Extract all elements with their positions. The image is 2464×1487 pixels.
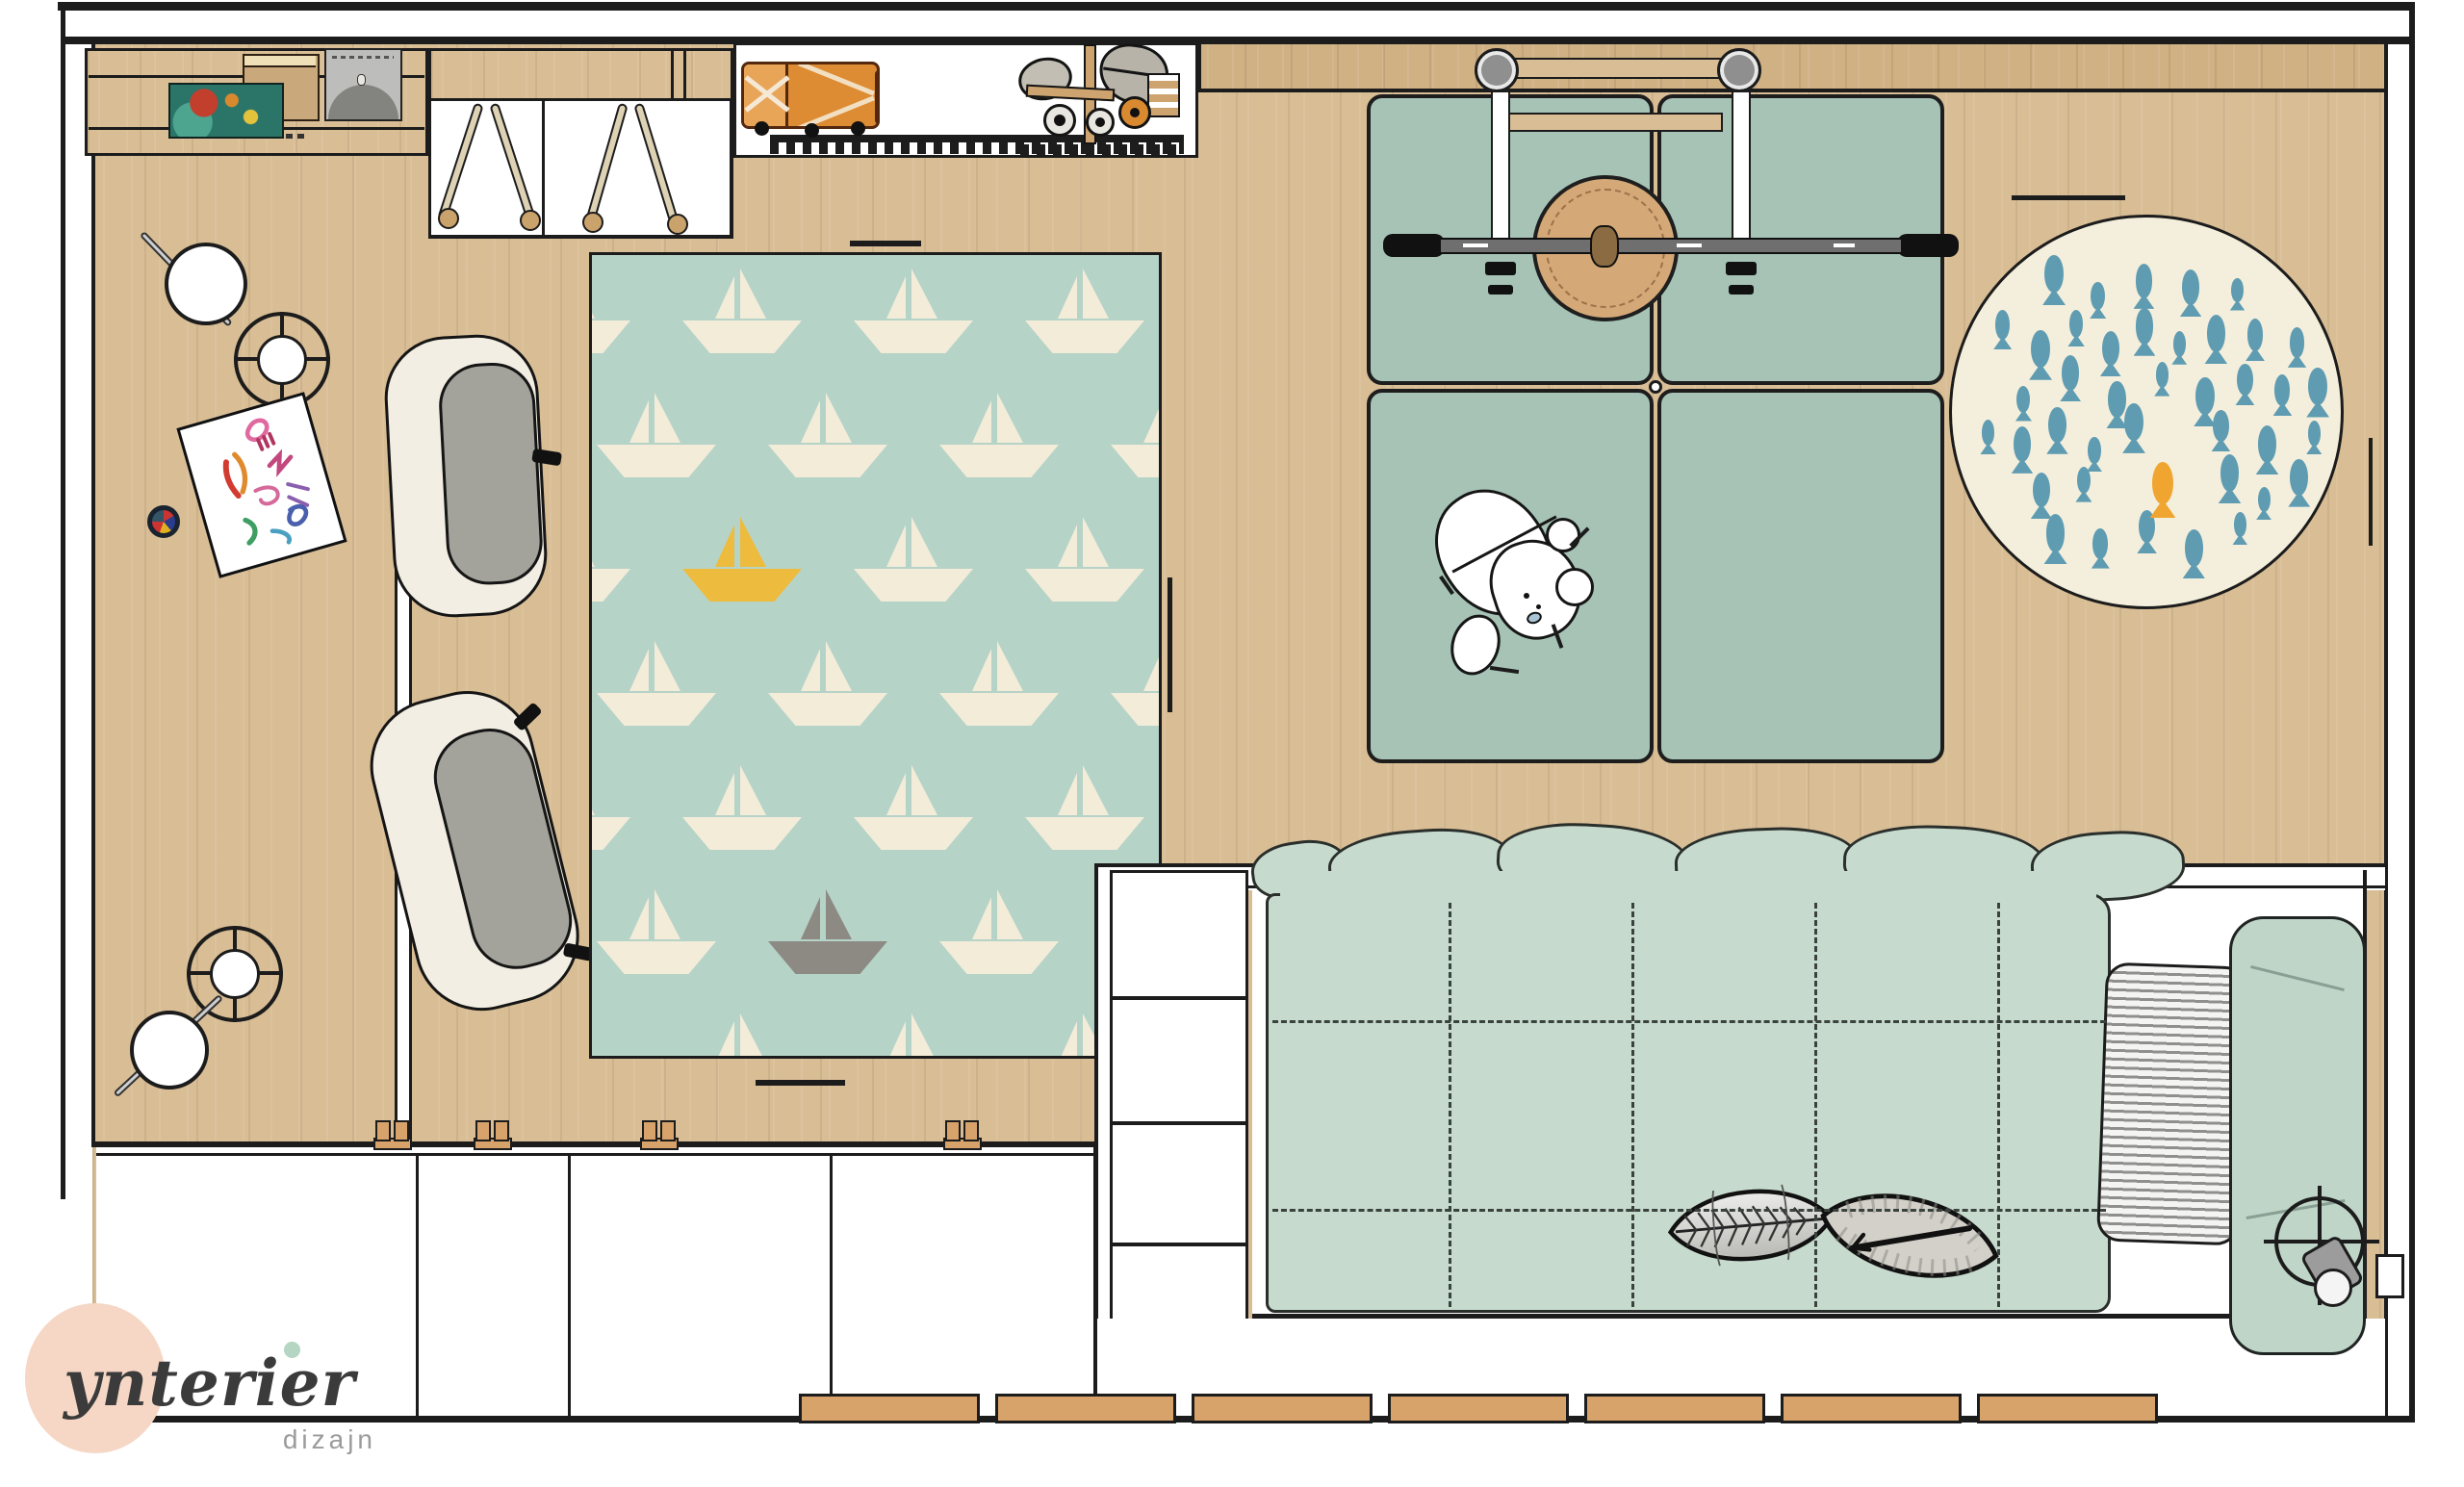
boat-part — [1058, 1021, 1077, 1059]
fish-motif — [2236, 364, 2253, 405]
nook-floor-line — [428, 235, 733, 239]
wall-right-inner — [2384, 44, 2388, 1416]
fish-part — [1982, 420, 1995, 446]
fish-motif — [2045, 514, 2066, 564]
fish-part — [2173, 331, 2186, 356]
boat-part — [589, 320, 630, 353]
fish-part — [2288, 354, 2306, 368]
boat-part — [682, 569, 802, 602]
desk-lamp-shade — [165, 243, 247, 325]
stool-foot — [438, 208, 459, 229]
fish-part — [2014, 426, 2031, 462]
boat-motif-yellow — [682, 517, 802, 602]
desk-top — [428, 48, 733, 101]
fish-motif — [2206, 315, 2227, 364]
boat-part — [740, 765, 766, 815]
boat-part — [886, 1021, 906, 1059]
boat-part — [597, 693, 716, 726]
nook-side — [428, 101, 431, 239]
crane-wheel-hub — [1054, 115, 1065, 126]
boat-part — [886, 773, 906, 815]
ring-lamp-inner — [257, 335, 307, 385]
strap-buckle — [1726, 262, 1757, 275]
fish-motif — [2212, 410, 2229, 451]
swing-ring — [1475, 48, 1519, 92]
swing-ladder-rung — [1501, 58, 1723, 79]
strap-buckle — [1488, 285, 1513, 295]
quilt-seam — [1997, 903, 2000, 1307]
boat-part — [597, 445, 716, 477]
bar-highlight — [1677, 244, 1702, 247]
boat-motif — [589, 1013, 630, 1059]
wall-left-inner — [91, 44, 95, 1147]
bear-ear — [1555, 568, 1594, 606]
fish-part — [2012, 458, 2033, 474]
fish-part — [2042, 289, 2066, 305]
boat-motif — [1111, 393, 1162, 477]
pillow-fold — [2250, 965, 2345, 991]
boat-motif — [1025, 765, 1144, 850]
teddy-bear — [1432, 479, 1596, 683]
fish-part — [2237, 364, 2252, 396]
striped-pillow — [2096, 962, 2248, 1246]
boat-part — [740, 1013, 766, 1059]
boat-part — [1143, 649, 1162, 691]
fish-part — [2308, 421, 2321, 447]
boat-part — [1111, 693, 1162, 726]
boat-part — [629, 400, 649, 443]
fish-motif — [2257, 425, 2278, 475]
fish-part — [2134, 294, 2155, 309]
bear-eye — [1536, 604, 1541, 609]
boat-part — [589, 1013, 595, 1059]
fish-part — [2182, 269, 2200, 306]
fish-part — [2308, 368, 2327, 405]
bar-highlight — [1834, 244, 1855, 247]
fish-part — [2154, 385, 2169, 397]
boat-part — [911, 765, 937, 815]
cabinet-handle — [640, 1120, 675, 1153]
bear-ear — [1546, 518, 1580, 552]
boat-part — [1025, 320, 1144, 353]
boat-motif — [597, 641, 716, 726]
wall-left-outer — [61, 2, 65, 1199]
boat-rug — [589, 252, 1162, 1059]
cabinet-right-line — [1093, 1147, 1097, 1416]
fish-motif — [1981, 420, 1995, 454]
boat-part — [826, 889, 852, 939]
fish-part — [2075, 490, 2092, 501]
strap-buckle — [1485, 262, 1516, 275]
handle-part — [642, 1120, 657, 1141]
fish-part — [2136, 308, 2154, 345]
boat-part — [715, 276, 734, 319]
fish-motif-orange — [2151, 462, 2174, 518]
fish-motif — [2307, 421, 2322, 454]
fish-part — [2069, 310, 2083, 338]
bed-drawer-front — [799, 1394, 980, 1423]
fish-part — [2180, 301, 2202, 317]
boat-part — [854, 569, 973, 602]
fish-motif — [1994, 310, 2011, 349]
fish-part — [2274, 374, 2290, 406]
fish-motif — [2273, 374, 2291, 416]
boat-motif — [597, 393, 716, 477]
fish-part — [2060, 387, 2081, 402]
fish-part — [2247, 319, 2264, 351]
fish-motif — [2155, 362, 2169, 396]
boat-part — [768, 693, 887, 726]
fish-part — [2306, 443, 2322, 454]
band-left-line — [1198, 44, 1201, 92]
fish-part — [2171, 353, 2187, 364]
fish-part — [2137, 539, 2157, 553]
fish-part — [2235, 392, 2254, 405]
boat-part — [801, 649, 820, 691]
fish-motif — [2181, 269, 2201, 318]
mat-junction-dot — [1649, 380, 1662, 394]
wall-top-inner — [61, 37, 2410, 44]
boat-motif — [854, 269, 973, 353]
floor-mark — [850, 241, 921, 246]
book-art-figure — [357, 74, 366, 86]
logo-subtitle: dizajn — [227, 1424, 376, 1455]
fish-motif — [2246, 319, 2265, 361]
trapeze-bar-grip — [1383, 234, 1445, 257]
crane-ladder — [1147, 73, 1180, 117]
boat-motif — [768, 641, 887, 726]
fish-motif — [2092, 528, 2109, 568]
fish-part — [2273, 402, 2293, 416]
chair-cushion — [437, 361, 545, 587]
handle-part — [394, 1120, 409, 1141]
boat-part — [629, 897, 649, 939]
fish-part — [2231, 278, 2244, 303]
floor-mark — [756, 1080, 845, 1086]
book-art-text-squiggle — [332, 56, 394, 59]
fish-part — [1993, 336, 2012, 349]
fish-part — [2122, 437, 2145, 453]
boat-motif-gray — [768, 889, 887, 974]
bed-drawer-front — [1584, 1394, 1765, 1423]
boat-part — [886, 525, 906, 567]
boat-part — [715, 773, 734, 815]
boat-part — [1058, 276, 1077, 319]
boat-part — [911, 269, 937, 319]
bed-drawer-front — [1192, 1394, 1373, 1423]
cabinet-top-line — [96, 1153, 1097, 1156]
fish-part — [2290, 327, 2305, 358]
boat-part — [682, 320, 802, 353]
desk-lamp2-shade — [130, 1011, 209, 1090]
swing-ring — [1717, 48, 1761, 92]
cabinet-door-seam — [830, 1153, 833, 1416]
fish-part — [2044, 548, 2067, 564]
boat-part — [997, 889, 1023, 939]
color-knob — [147, 505, 180, 538]
teal-painting — [168, 83, 284, 139]
fish-part — [2102, 331, 2119, 366]
boat-part — [911, 1013, 937, 1059]
boat-part — [911, 517, 937, 567]
fish-motif — [2076, 467, 2091, 502]
crane-track — [1020, 144, 1176, 156]
band-bottom-line — [1198, 89, 2384, 92]
boat-part — [715, 525, 734, 567]
boat-motif — [1025, 269, 1144, 353]
fish-motif — [2289, 459, 2309, 506]
fish-part — [2044, 255, 2064, 293]
fish-motif — [2289, 327, 2306, 368]
fish-motif — [2220, 454, 2241, 503]
fish-part — [2136, 264, 2153, 298]
fish-motif — [2172, 331, 2186, 364]
handle-part — [494, 1120, 509, 1141]
fish-part — [2067, 335, 2084, 346]
bed-brace — [798, 62, 875, 96]
boat-part — [654, 641, 680, 691]
wall-top-outer — [58, 2, 2415, 11]
handle-part — [963, 1120, 979, 1141]
fish-part — [2290, 459, 2308, 496]
quilt-seam — [1449, 903, 1451, 1307]
fish-part — [2232, 534, 2247, 545]
boat-part — [826, 641, 852, 691]
left-wall-cavity — [65, 11, 91, 1147]
toy-crane — [1011, 40, 1182, 158]
boat-part — [589, 569, 630, 602]
fish-part — [2134, 340, 2156, 355]
boat-part — [1143, 400, 1162, 443]
boat-part — [715, 1021, 734, 1059]
boat-part — [801, 400, 820, 443]
boat-motif — [939, 393, 1059, 477]
fish-part — [2256, 509, 2271, 520]
shelf-divider — [1113, 996, 1245, 1000]
boat-motif — [854, 1013, 973, 1059]
fish-motif — [2184, 529, 2204, 578]
stool-foot — [520, 210, 541, 231]
folder-top-strip — [244, 56, 316, 67]
fish-motif — [2047, 407, 2066, 454]
fish-part — [2204, 347, 2227, 364]
quilt-seam — [1631, 903, 1634, 1307]
fish-part — [2207, 315, 2225, 352]
boat-part — [801, 897, 820, 939]
fish-part — [2152, 462, 2173, 504]
floor-mark — [2012, 195, 2125, 200]
bear-eye — [1524, 593, 1529, 599]
swing-strap — [1732, 90, 1751, 252]
boat-part — [589, 765, 595, 815]
fish-part — [2016, 386, 2030, 413]
boat-motif — [682, 765, 802, 850]
boat-motif — [854, 517, 973, 602]
floor-mark — [1168, 577, 1172, 712]
book-cover-art — [324, 48, 402, 121]
boat-part — [854, 320, 973, 353]
fish-part — [2090, 307, 2107, 320]
shelf-divider — [1113, 1243, 1245, 1246]
boat-motif — [854, 765, 973, 850]
fish-part — [2048, 407, 2066, 443]
cabinet-handle — [943, 1120, 978, 1153]
boat-part — [1025, 817, 1144, 850]
wall-right-outer — [2409, 2, 2415, 1421]
truck-body — [741, 62, 880, 129]
bar-highlight — [1463, 244, 1488, 247]
boat-motif — [589, 269, 630, 353]
toy-truck — [739, 60, 884, 137]
boat-motif — [589, 517, 630, 602]
boat-part — [589, 269, 595, 319]
fish-part — [2306, 400, 2329, 417]
fish-part — [2256, 458, 2279, 474]
boat-part — [972, 649, 991, 691]
boat-part — [939, 693, 1059, 726]
fish-motif — [2135, 264, 2154, 309]
handle-part — [475, 1120, 491, 1141]
boat-motif — [597, 889, 716, 974]
boat-part — [768, 941, 887, 974]
boat-part — [972, 897, 991, 939]
shelf-divider — [1113, 1121, 1245, 1125]
boat-part — [1083, 517, 1109, 567]
fish-part — [2220, 454, 2239, 492]
boat-part — [1058, 525, 1077, 567]
handle-part — [375, 1120, 391, 1141]
boat-part — [589, 517, 595, 567]
fish-motif — [2307, 368, 2328, 418]
trapeze-bar-grip — [1897, 234, 1959, 257]
quilt-seam — [1814, 903, 1817, 1307]
fish-motif — [2257, 487, 2271, 520]
boat-part — [1083, 269, 1109, 319]
boat-part — [740, 269, 766, 319]
truck-wheel — [851, 121, 865, 136]
duvet-top-cover — [1280, 871, 2096, 919]
fish-motif — [2032, 473, 2051, 519]
stool-foot — [582, 212, 603, 233]
bed-frame-bottom-line — [1252, 1314, 2367, 1319]
fish-part — [2124, 403, 2143, 441]
ring-lamp2-inner — [210, 949, 260, 999]
fish-part — [2156, 362, 2169, 388]
top-wood-band — [1198, 44, 2384, 91]
boat-part — [1025, 569, 1144, 602]
bed-drawer-front — [1388, 1394, 1569, 1423]
boat-part — [589, 817, 630, 850]
crane-hub-dot — [1130, 108, 1140, 117]
fish-part — [2234, 512, 2246, 537]
fish-motif — [2016, 386, 2031, 422]
quilt-seam — [1272, 1020, 2106, 1023]
fish-motif — [2061, 355, 2080, 401]
fish-part — [2092, 555, 2110, 569]
boat-part — [654, 393, 680, 443]
fish-part — [2185, 529, 2203, 567]
boat-motif — [682, 269, 802, 353]
boat-part — [939, 445, 1059, 477]
wall-bracket — [2375, 1254, 2404, 1298]
fish-part — [2046, 439, 2067, 454]
boat-motif — [682, 1013, 802, 1059]
boat-part — [1111, 445, 1162, 477]
fish-motif — [2068, 310, 2084, 346]
fish-part — [2258, 487, 2271, 512]
boat-part — [997, 641, 1023, 691]
fish-part — [2211, 438, 2230, 451]
fish-motif — [2043, 255, 2065, 305]
cabinet-handle — [474, 1120, 508, 1153]
fish-part — [2033, 473, 2050, 508]
fish-part — [2150, 500, 2176, 518]
fish-part — [2091, 282, 2105, 310]
boat-part — [826, 393, 852, 443]
truck-wheel — [805, 123, 819, 138]
boat-part — [654, 889, 680, 939]
fish-part — [2246, 347, 2265, 362]
fish-part — [2219, 487, 2242, 503]
boat-part — [682, 817, 802, 850]
truck-bumper — [875, 70, 880, 124]
stool-foot — [667, 214, 688, 235]
play-mat — [1657, 389, 1944, 763]
fish-part — [2100, 362, 2121, 377]
boat-part — [1083, 765, 1109, 815]
fish-motif — [2135, 308, 2155, 355]
swing-strap — [1491, 90, 1510, 252]
boat-part — [740, 517, 766, 567]
book-art-planet-dome — [328, 85, 398, 121]
sconce-cap — [2314, 1269, 2352, 1307]
quilt-seam — [1272, 1209, 2106, 1212]
swing-ladder-rung — [1501, 113, 1723, 132]
fish-part — [2183, 562, 2206, 578]
fish-part — [2062, 355, 2079, 391]
fish-part — [2046, 514, 2066, 551]
logo-brand: ynterier — [64, 1346, 355, 1421]
fish-part — [2077, 467, 2091, 494]
fish-motif — [2030, 330, 2051, 380]
fish-part — [1980, 443, 1996, 454]
fish-part — [2092, 528, 2108, 558]
bear-dash — [1490, 666, 1519, 674]
boat-part — [629, 649, 649, 691]
fish-motif — [2123, 403, 2144, 453]
bed-drawer-front — [1781, 1394, 1962, 1423]
boat-part — [597, 941, 716, 974]
boat-motif — [1111, 641, 1162, 726]
cabinet-door-seam — [416, 1153, 419, 1416]
boat-part — [997, 393, 1023, 443]
fish-part — [1995, 310, 2011, 340]
truck-wheel — [755, 121, 769, 136]
crane-wheel-hub — [1095, 117, 1105, 127]
floor-mark — [2369, 438, 2373, 546]
boat-motif — [589, 765, 630, 850]
fish-motif — [2233, 512, 2246, 545]
fish-rug — [1949, 215, 2344, 609]
desk-chair-upper — [381, 326, 569, 624]
boat-part — [1058, 773, 1077, 815]
fish-motif — [2013, 426, 2032, 474]
strap-buckle — [1729, 285, 1754, 295]
boat-motif — [939, 889, 1059, 974]
boat-part — [768, 445, 887, 477]
fish-part — [2213, 410, 2228, 442]
fish-part — [2015, 409, 2032, 421]
